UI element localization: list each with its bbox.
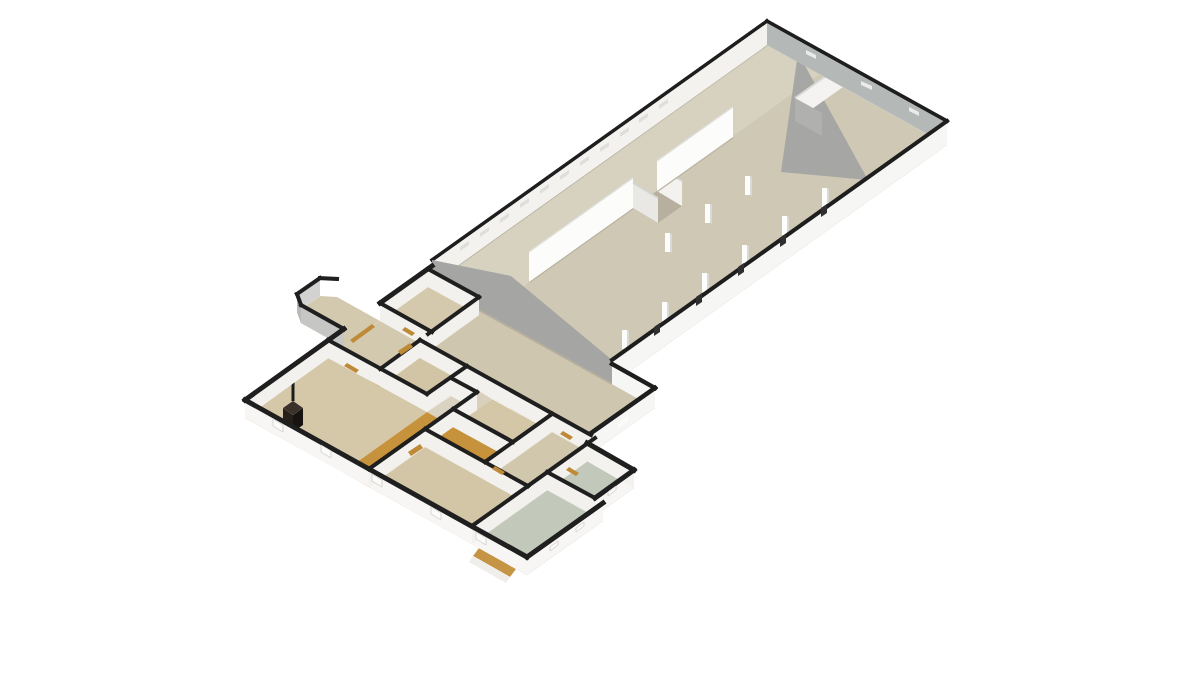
column-1-face (622, 330, 627, 349)
column-4-face (742, 245, 747, 264)
column-8-face (705, 204, 710, 223)
column-5-face (782, 216, 787, 235)
column-7-face (665, 233, 670, 252)
column-8-side (710, 204, 712, 224)
floorplan-svg (0, 0, 1200, 675)
column-9-side (750, 176, 752, 196)
column-2-face (662, 302, 667, 321)
column-9-face (745, 176, 750, 195)
floorplan-3d-render (0, 0, 1200, 675)
column-3-face (702, 273, 707, 292)
column-6-face (822, 188, 827, 207)
column-7-side (670, 233, 672, 253)
